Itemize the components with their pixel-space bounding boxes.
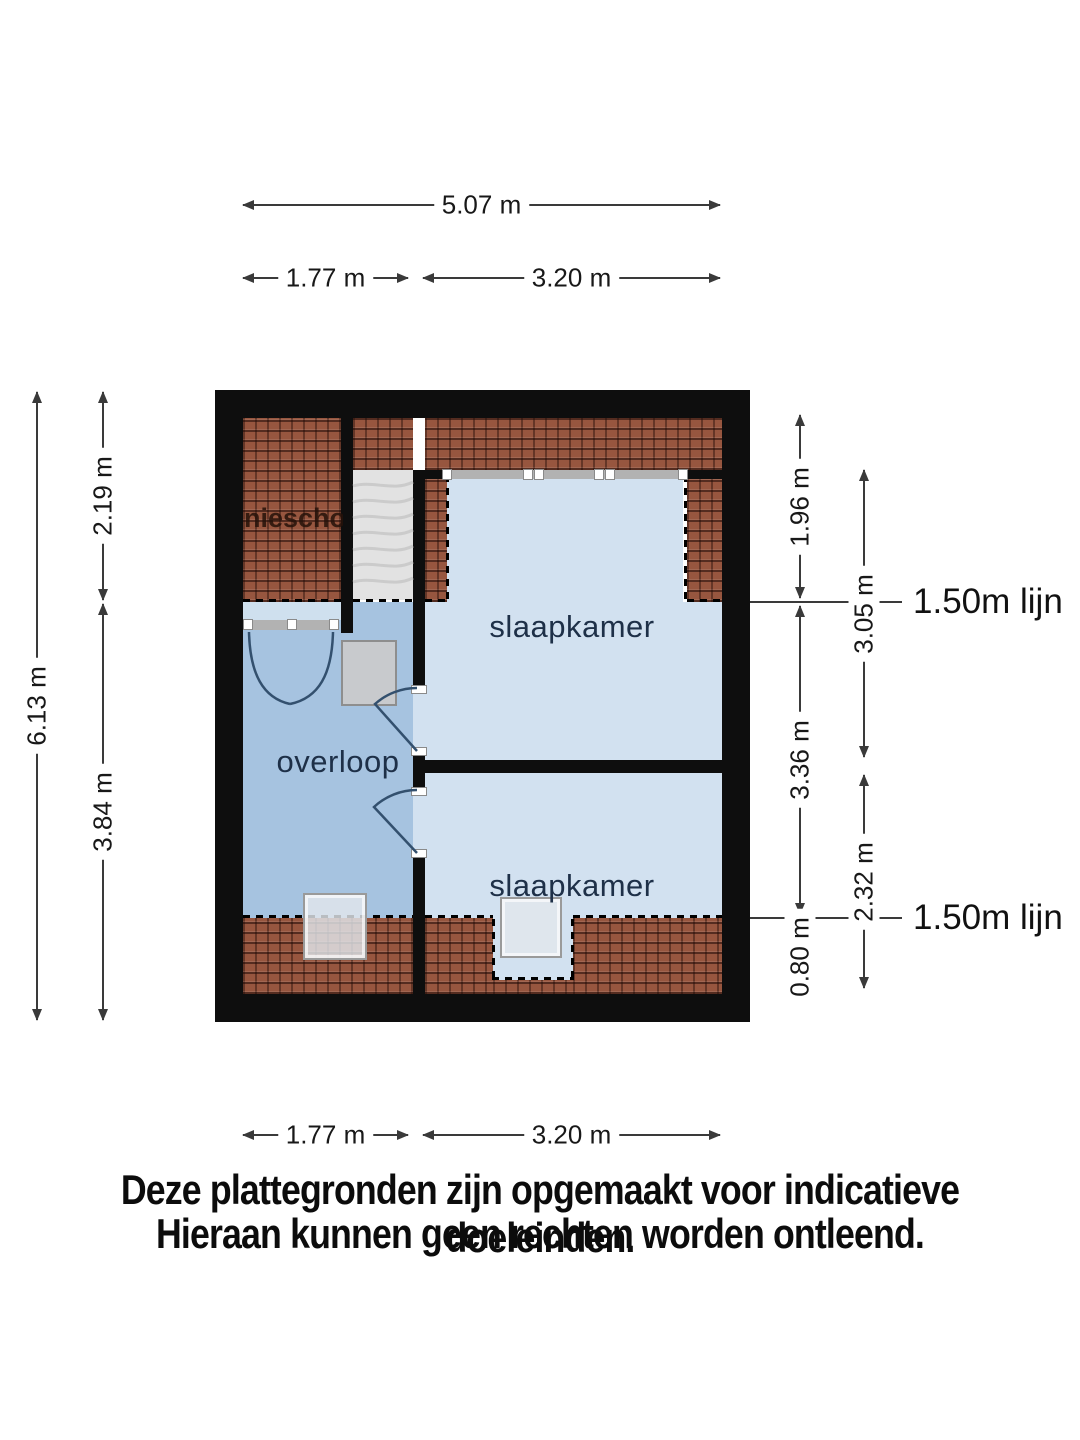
dim-bottom-right: 3.20 m: [423, 1134, 720, 1136]
closet-marker: [243, 619, 253, 630]
door-jamb: [411, 849, 427, 858]
dormer-dashed-line: [571, 918, 574, 978]
door-opening: [413, 796, 425, 849]
dim-right-lower-label: 0.80 m: [785, 909, 816, 1005]
door-jamb: [411, 787, 427, 796]
dim-top-total: 5.07 m: [243, 204, 720, 206]
roof-tiles-left-flank: [425, 478, 447, 602]
knee-dashed-line: [425, 599, 447, 602]
knee-dashed-line: [446, 478, 449, 599]
window-marker: [442, 469, 452, 480]
dim-bottom-right-label: 3.20 m: [524, 1120, 620, 1151]
room-label-knee-wall: niescho: [244, 503, 343, 534]
skylight-slaapkamer: [500, 897, 562, 958]
window-band: [447, 470, 687, 479]
dim-right-inner-upper-label: 3.05 m: [849, 566, 880, 662]
dormer-dashed-line: [492, 918, 495, 978]
door-jamb: [411, 685, 427, 694]
dim-top-left: 1.77 m: [243, 277, 408, 279]
knee-dashed-line: [353, 599, 413, 602]
roof-tiles-right-flank: [687, 478, 722, 602]
dim-left-upper: 2.19 m: [102, 392, 104, 600]
window-marker: [678, 469, 688, 480]
dim-left-total: 6.13 m: [36, 392, 38, 1020]
roof-tiles-below-notch: [493, 980, 573, 994]
dim-top-left-label: 1.77 m: [278, 263, 374, 294]
knee-dashed-line: [425, 915, 493, 918]
dim-right-inner-upper: 3.05 m: [863, 470, 865, 757]
knee-dashed-line: [684, 478, 687, 599]
dim-bottom-left: 1.77 m: [243, 1134, 408, 1136]
dim-right-middle-label: 3.36 m: [785, 712, 816, 808]
dim-right-upper: 1.96 m: [799, 415, 801, 598]
room-label-overloop: overloop: [277, 744, 400, 780]
window-marker: [534, 469, 544, 480]
dim-top-total-label: 5.07 m: [434, 190, 530, 221]
room-label-slaapkamer-bottom: slaapkamer: [489, 868, 654, 904]
dim-top-right-label: 3.20 m: [524, 263, 620, 294]
outer-wall-bottom: [215, 994, 750, 1022]
dormer-dashed-line: [492, 977, 574, 980]
inner-wall-main-mid: [413, 756, 425, 787]
room-slaapkamer-top-floor-upper: [447, 478, 683, 602]
dim-right-middle: 3.36 m: [799, 606, 801, 914]
window-stub-right: [687, 470, 722, 479]
dim-right-lower: 0.80 m: [799, 922, 801, 992]
room-label-slaapkamer-top: slaapkamer: [489, 609, 654, 645]
inner-wall-main-lower: [413, 858, 425, 994]
height-line-1-label: 1.50m lijn: [913, 582, 1063, 622]
knee-dashed-line: [573, 915, 722, 918]
outer-wall-right: [722, 390, 750, 1022]
outer-wall-top: [215, 390, 750, 418]
staircase: [353, 470, 413, 600]
height-line-2-label: 1.50m lijn: [913, 898, 1063, 938]
door-jamb: [411, 747, 427, 756]
disclaimer-line-2: Hieraan kunnen geen rechten worden ontle…: [81, 1210, 999, 1258]
roof-tiles-bottom-mid: [425, 918, 493, 994]
dim-left-lower-label: 3.84 m: [88, 764, 119, 860]
floorplan-page: niescho slaapkamer overloop slaapkamer 1…: [0, 0, 1080, 1440]
window-marker: [594, 469, 604, 480]
closet-marker: [287, 619, 297, 630]
dim-right-inner-lower-label: 2.32 m: [849, 834, 880, 930]
dim-right-inner-lower: 2.32 m: [863, 775, 865, 988]
dim-right-upper-label: 1.96 m: [785, 459, 816, 555]
outer-wall-left: [215, 390, 243, 1022]
dim-left-total-label: 6.13 m: [22, 658, 53, 754]
dim-left-lower: 3.84 m: [102, 604, 104, 1020]
dim-top-right: 3.20 m: [423, 277, 720, 279]
divider-wall: [425, 760, 722, 773]
roof-tiles-bottom-right: [573, 918, 722, 994]
dim-left-upper-label: 2.19 m: [88, 448, 119, 544]
roof-tiles-top-band: [425, 418, 722, 470]
dim-bottom-left-label: 1.77 m: [278, 1120, 374, 1151]
window-marker: [605, 469, 615, 480]
shaft-block: [341, 640, 397, 706]
knee-dashed-line: [687, 599, 722, 602]
knee-wall-strip: [243, 602, 341, 620]
door-opening: [413, 694, 425, 747]
knee-dashed-line: [243, 599, 341, 602]
closet-marker: [329, 619, 339, 630]
skylight-overloop: [303, 893, 367, 960]
window-marker: [523, 469, 533, 480]
roof-tiles-above-stairs: [353, 418, 413, 470]
inner-wall-main-upper: [413, 470, 425, 685]
